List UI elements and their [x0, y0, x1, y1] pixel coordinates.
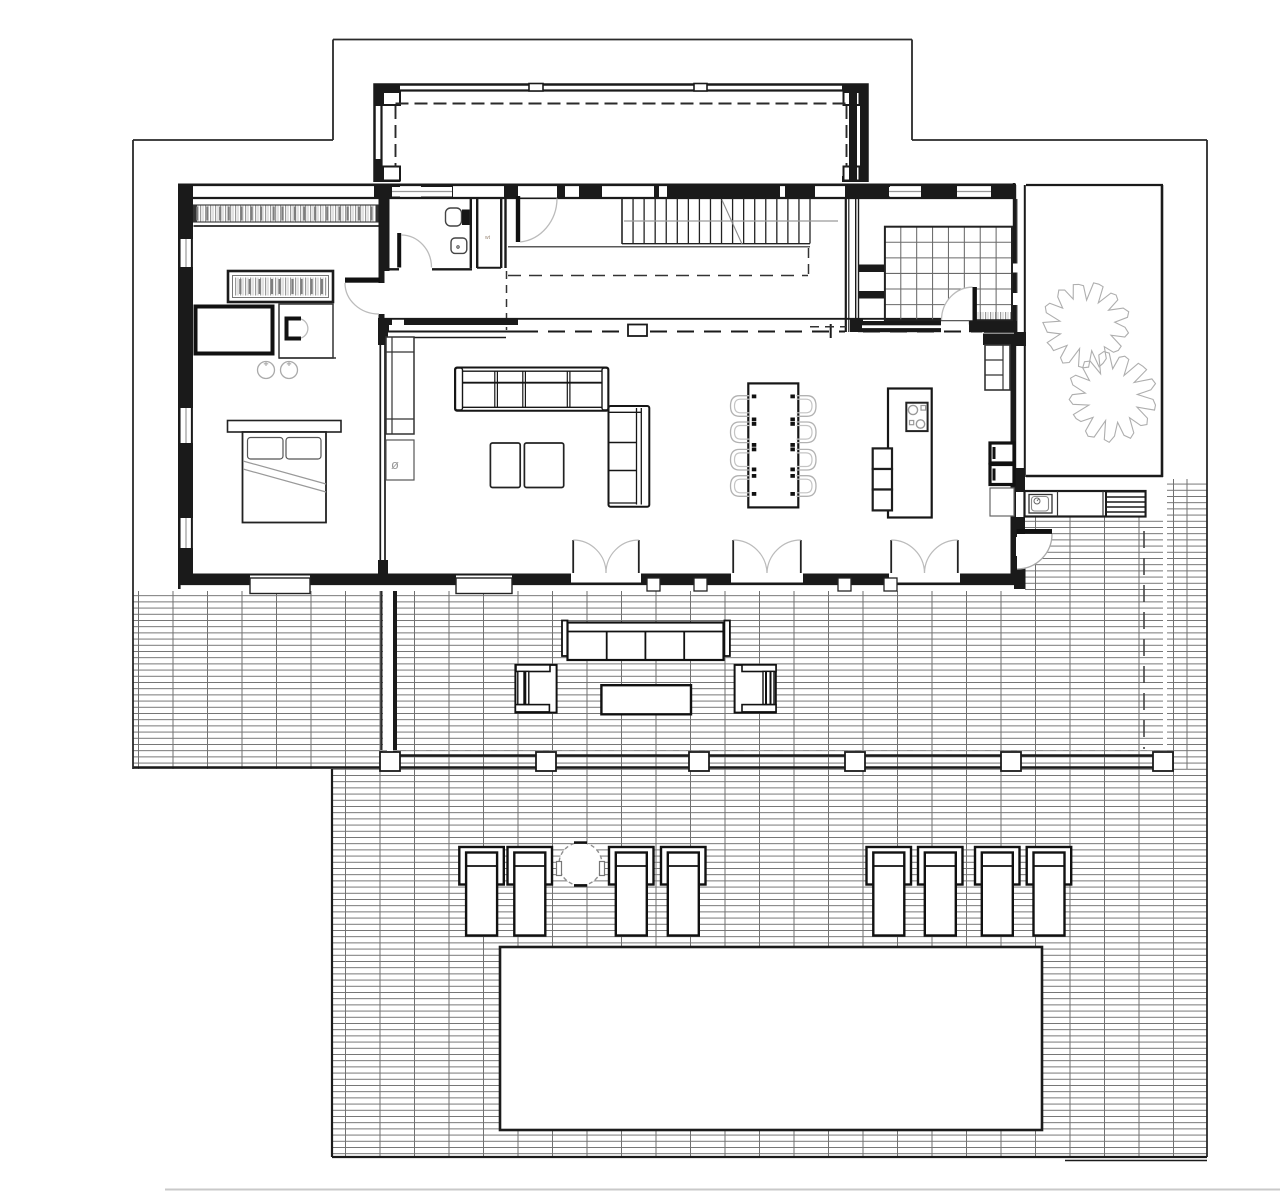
svg-text:wt: wt [485, 235, 491, 241]
svg-text:ø: ø [391, 457, 399, 472]
